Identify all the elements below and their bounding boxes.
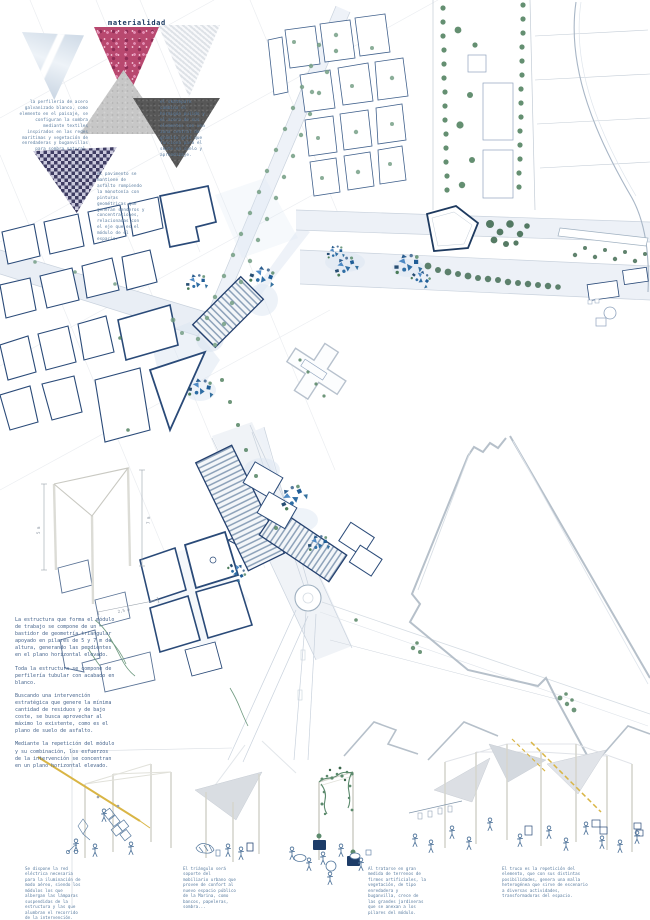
structure-paragraph: Buscando una intervención estratégica qu… <box>15 693 117 736</box>
presentation-board: 5 m 7 m 2,5 m <box>0 0 650 920</box>
pentagon-plaza <box>427 206 478 251</box>
dock-building-cross <box>276 331 357 411</box>
vignette-repetition <box>409 739 643 853</box>
dim-label-5m: 5 m <box>36 526 41 534</box>
dim-label-7m: 7 m <box>146 516 151 524</box>
structure-paragraph: Toda la estructura se compone de perfile… <box>15 666 117 687</box>
vignette-furniture <box>195 772 262 862</box>
litter-bin <box>247 843 253 851</box>
materiality-note-steel: la perfilería de acero galvanizado blanc… <box>18 100 88 153</box>
harbor-quays <box>344 436 650 760</box>
blocks-north-grid <box>268 14 408 196</box>
materiality-note-skatepark: el skatepark combina el hormigón pulido … <box>160 100 210 159</box>
materiality-title: materialidad <box>108 19 166 27</box>
module-axonometric: 5 m 7 m 2,5 m <box>36 468 159 615</box>
structure-text-column: La estructura que forma el módulo de tra… <box>15 617 117 776</box>
vignette-caption-repetition: El truco es la repetición del elemento, … <box>502 866 592 899</box>
bench-sketch <box>196 844 214 854</box>
kite-figure <box>78 819 90 840</box>
vignette-caption-vegetation: Al tratarse en gran medida de terrenos d… <box>368 866 426 915</box>
vignette-caption-lighting: Se dispone la red eléctrica necesaria pa… <box>25 866 85 920</box>
roundabout <box>295 585 321 611</box>
site-plan-map: 5 m 7 m 2,5 m <box>0 0 650 920</box>
planter <box>313 840 326 850</box>
people <box>226 844 244 860</box>
vignette-caption-furniture: El triángulo será soporte del mobiliario… <box>183 866 237 910</box>
laundry-line <box>409 801 462 813</box>
structure-paragraph: La estructura que forma el módulo de tra… <box>15 617 117 660</box>
materiality-note-pavement: el pavimento se mantiene de asfalto romp… <box>97 172 147 243</box>
structure-paragraph: Mediante la repetición del módulo y su c… <box>15 741 117 769</box>
vignette-vegetation <box>290 767 372 885</box>
